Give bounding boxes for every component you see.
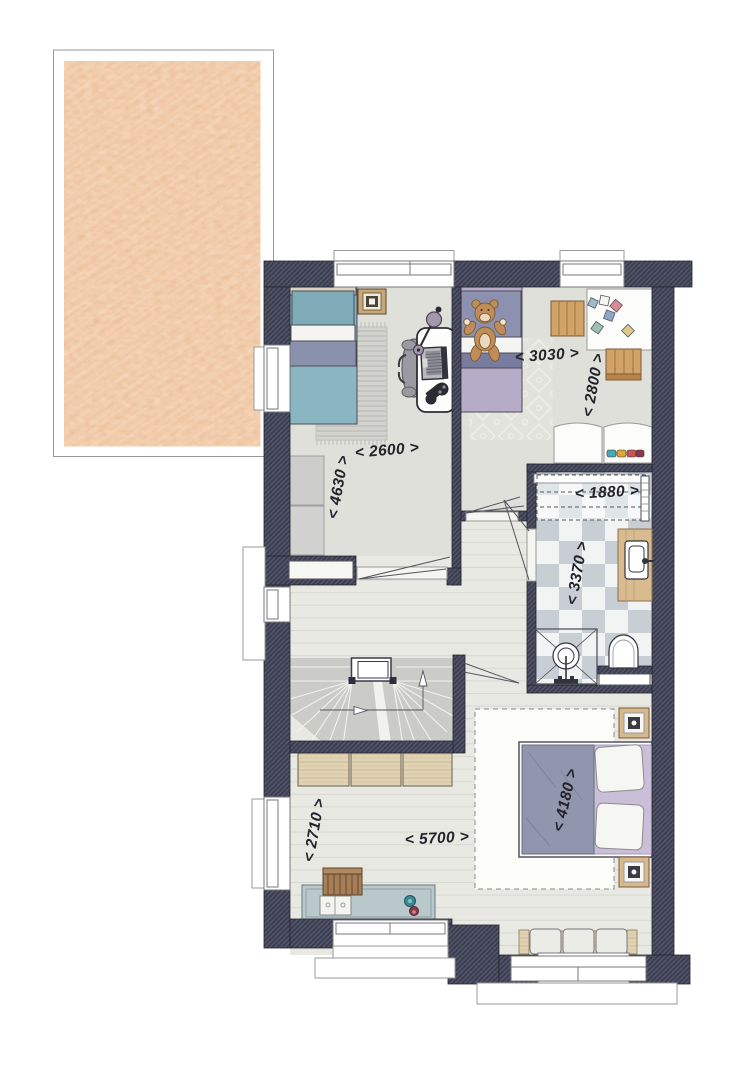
svg-text:< 5700 >: < 5700 > [404, 828, 469, 848]
svg-text:< 1880 >: < 1880 > [574, 482, 639, 502]
